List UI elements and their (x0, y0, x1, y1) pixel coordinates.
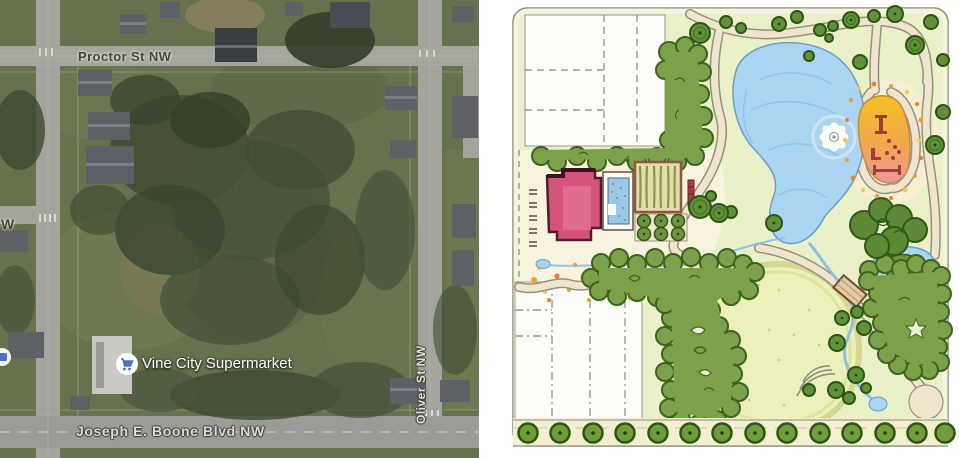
community-garden (635, 162, 681, 212)
plaza (909, 385, 943, 419)
small-pond-south (869, 397, 887, 411)
poi-marker-icon (0, 353, 7, 361)
small-pond-west (536, 260, 550, 269)
satellite-imagery (0, 0, 479, 458)
satellite-map-panel: Proctor St NW W Vine City Supermarket Ol… (0, 0, 479, 458)
pool-courtyard (603, 172, 633, 230)
planter-grid (635, 214, 687, 241)
parcels-top-left (525, 15, 665, 146)
supermarket-marker (116, 353, 138, 375)
site-plan-panel (479, 0, 959, 458)
site-plan-drawing (479, 0, 959, 458)
comparison-figure: Proctor St NW W Vine City Supermarket Ol… (0, 0, 959, 458)
